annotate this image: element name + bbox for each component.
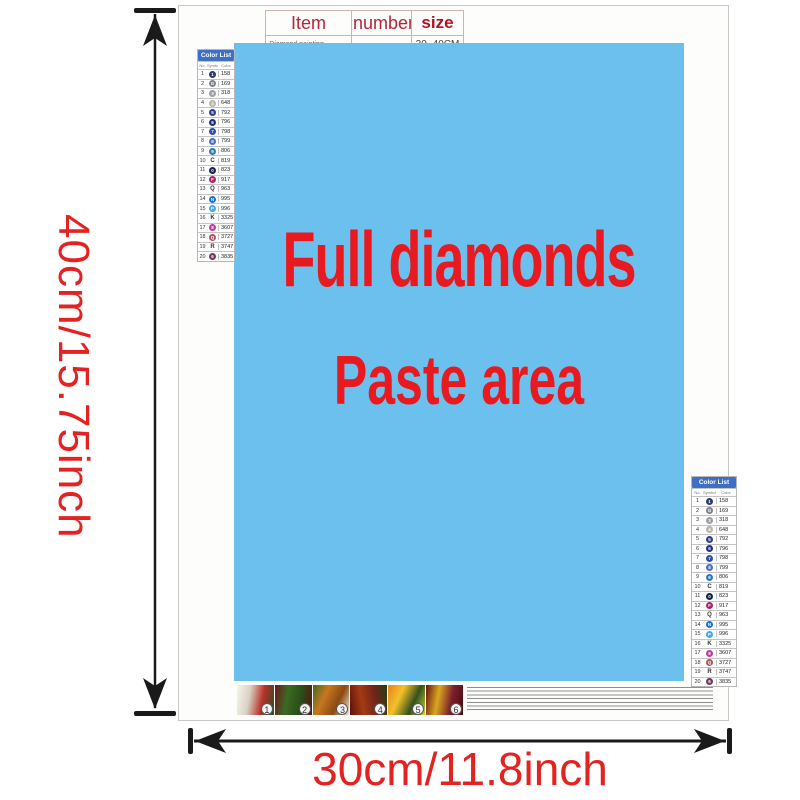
color-symbol-icon: N [703, 621, 716, 628]
dmc-color-code: 819 [716, 584, 736, 590]
color-dot-icon: 6 [706, 545, 713, 552]
step-thumbnail: 3 [313, 685, 350, 715]
dmc-color-code: 3835 [218, 254, 234, 260]
color-symbol-icon: 4 [703, 526, 716, 533]
color-list-row: 10C819 [692, 582, 736, 592]
color-row-number: 11 [692, 593, 703, 599]
color-row-number: 5 [692, 536, 703, 542]
step-thumbnail: 5 [388, 685, 425, 715]
color-dot-icon: P [706, 631, 713, 638]
color-row-number: 4 [692, 527, 703, 533]
color-dot-icon: 6 [209, 253, 216, 260]
color-dot-icon: 6 [706, 678, 713, 685]
color-row-number: 10 [198, 158, 207, 164]
dmc-color-code: 806 [716, 574, 736, 580]
height-dimension-arrow-icon [130, 6, 180, 720]
color-symbol-icon: Q [207, 234, 218, 241]
step-number-badge: 6 [450, 703, 462, 715]
dmc-color-code: 3325 [716, 641, 736, 647]
color-dot-icon: 8 [706, 564, 713, 571]
color-symbol-icon: R [207, 244, 218, 250]
color-dot-icon: 8 [209, 224, 216, 231]
color-list-row: 14N995 [198, 194, 234, 204]
color-symbol-icon: 5 [703, 536, 716, 543]
color-row-number: 3 [692, 517, 703, 523]
step-number-badge: 4 [374, 703, 386, 715]
color-list-column-header: Color [716, 490, 736, 495]
dmc-color-code: 819 [218, 158, 234, 164]
color-list-title: Color List [692, 477, 736, 488]
height-dimension-label: 40cm/15.75inch [48, 214, 98, 539]
color-list-row: 1783607 [692, 648, 736, 658]
dmc-color-code: 792 [716, 536, 736, 542]
color-symbol-icon: Q [703, 659, 716, 666]
color-dot-icon: Q [209, 234, 216, 241]
dmc-color-code: 806 [218, 148, 234, 154]
dmc-color-code: 799 [218, 138, 234, 144]
dmc-color-code: 3325 [218, 215, 234, 221]
color-row-number: 8 [692, 565, 703, 571]
color-symbol-icon: 7 [703, 555, 716, 562]
color-dot-icon: 0 [706, 593, 713, 600]
dmc-color-code: 3747 [716, 669, 736, 675]
color-symbol-icon: C [703, 584, 716, 590]
color-symbol-icon: 9 [703, 574, 716, 581]
step-thumbnail: 1 [237, 685, 274, 715]
dmc-color-code: 996 [716, 631, 736, 637]
color-dot-icon: F [209, 176, 216, 183]
color-dot-icon: 3 [706, 517, 713, 524]
color-symbol-icon: 9 [207, 148, 218, 155]
color-row-number: 14 [198, 196, 207, 202]
dmc-color-code: 3727 [218, 234, 234, 240]
dmc-color-code: 996 [218, 206, 234, 212]
color-dot-icon: N [706, 621, 713, 628]
color-row-number: 1 [198, 71, 207, 77]
color-dot-icon: 1 [706, 498, 713, 505]
color-list-row: 77798 [692, 553, 736, 563]
dmc-color-code: 823 [716, 593, 736, 599]
color-symbol-icon: R [703, 669, 716, 675]
color-list-row: 13Q963 [198, 184, 234, 194]
color-symbol-icon: 0 [703, 593, 716, 600]
dmc-color-code: 158 [716, 498, 736, 504]
color-letter-symbol: K [210, 215, 214, 221]
color-list-row: 99806 [692, 572, 736, 582]
color-list-row: 2063835 [198, 251, 234, 261]
step-thumbnail: 6 [426, 685, 463, 715]
color-dot-icon: 8 [706, 650, 713, 657]
step-number-badge: 2 [299, 703, 311, 715]
color-letter-symbol: K [707, 641, 711, 647]
color-symbol-icon: 0 [207, 167, 218, 174]
color-list-row: 16K3325 [692, 639, 736, 649]
color-symbol-icon: G [207, 80, 218, 87]
dmc-color-code: 796 [218, 119, 234, 125]
dmc-color-code: 995 [218, 196, 234, 202]
dmc-color-code: 169 [716, 508, 736, 514]
color-symbol-icon: 4 [207, 100, 218, 107]
dmc-color-code: 3835 [716, 679, 736, 685]
color-row-number: 6 [692, 546, 703, 552]
dmc-color-code: 917 [716, 603, 736, 609]
color-dot-icon: 7 [209, 128, 216, 135]
color-dot-icon: P [209, 205, 216, 212]
color-list-row: 66796 [198, 117, 234, 127]
color-list-row: 2063835 [692, 677, 736, 687]
color-list-row: 33318 [692, 515, 736, 525]
color-list-row: 12F917 [692, 601, 736, 611]
color-list-column-header: No. [692, 490, 703, 495]
color-letter-symbol: R [210, 244, 214, 250]
color-row-number: 2 [198, 81, 207, 87]
color-list-row: 13Q963 [692, 610, 736, 620]
dmc-color-code: 963 [716, 612, 736, 618]
color-row-number: 13 [692, 612, 703, 618]
color-symbol-icon: N [207, 196, 218, 203]
color-list-row: 2G169 [198, 79, 234, 89]
number-header-cell: number [352, 11, 412, 36]
color-row-number: 1 [692, 498, 703, 504]
color-row-number: 18 [692, 660, 703, 666]
dmc-color-code: 3607 [218, 225, 234, 231]
color-list-column-headers: No.SymbolColor [692, 488, 736, 496]
color-list-row: 18Q3727 [198, 232, 234, 242]
step-number-badge: 3 [336, 703, 348, 715]
dmc-color-code: 3727 [716, 660, 736, 666]
color-row-number: 10 [692, 584, 703, 590]
step-number-badge: 1 [261, 703, 273, 715]
color-symbol-icon: P [207, 205, 218, 212]
color-list-row: 11158 [692, 496, 736, 506]
color-symbol-icon: 6 [207, 119, 218, 126]
color-list-column-header: Color [218, 63, 234, 68]
dmc-color-code: 648 [716, 527, 736, 533]
color-row-number: 18 [198, 234, 207, 240]
color-dot-icon: 6 [209, 119, 216, 126]
color-list-row: 15P996 [198, 203, 234, 213]
color-row-number: 19 [198, 244, 207, 250]
color-list-row: 110823 [198, 165, 234, 175]
color-symbol-icon: F [703, 602, 716, 609]
color-symbol-icon: 3 [207, 90, 218, 97]
dmc-color-code: 798 [218, 129, 234, 135]
color-row-number: 12 [198, 177, 207, 183]
color-dot-icon: 5 [209, 109, 216, 116]
color-list-row: 15P996 [692, 629, 736, 639]
color-list-column-header: No. [198, 63, 207, 68]
color-symbol-icon: 8 [207, 138, 218, 145]
color-symbol-icon: G [703, 507, 716, 514]
color-row-number: 4 [198, 100, 207, 106]
color-dot-icon: 4 [706, 526, 713, 533]
dmc-color-code: 796 [716, 546, 736, 552]
color-list-row: 10C819 [198, 155, 234, 165]
color-list-row: 1783607 [198, 223, 234, 233]
color-row-number: 16 [198, 215, 207, 221]
color-list-title: Color List [198, 50, 234, 61]
step-thumbnails-strip: 123456 [237, 685, 463, 715]
color-letter-symbol: Q [707, 612, 712, 618]
dmc-color-code: 3607 [716, 650, 736, 656]
color-dot-icon: Q [706, 659, 713, 666]
color-list-row: 44648 [692, 525, 736, 535]
color-dot-icon: 5 [706, 536, 713, 543]
color-list-right: Color ListNo.SymbolColor111582G169333184… [691, 476, 737, 687]
dmc-color-code: 318 [716, 517, 736, 523]
color-row-number: 16 [692, 641, 703, 647]
color-symbol-icon: C [207, 158, 218, 164]
dmc-color-code: 917 [218, 177, 234, 183]
color-symbol-icon: 8 [703, 650, 716, 657]
color-list-row: 11158 [198, 69, 234, 79]
dmc-color-code: 318 [218, 90, 234, 96]
color-list-row: 14N995 [692, 620, 736, 630]
color-dot-icon: 8 [209, 138, 216, 145]
color-row-number: 17 [692, 650, 703, 656]
color-row-number: 7 [198, 129, 207, 135]
step-thumbnail: 4 [350, 685, 387, 715]
color-symbol-icon: 5 [207, 109, 218, 116]
color-row-number: 19 [692, 669, 703, 675]
size-header-cell: size [412, 11, 464, 36]
dmc-color-code: 792 [218, 110, 234, 116]
paste-area-title-line1: Full diamonds [234, 221, 684, 299]
color-letter-symbol: C [707, 584, 711, 590]
color-symbol-icon: 6 [207, 253, 218, 260]
color-row-number: 5 [198, 110, 207, 116]
color-symbol-icon: 8 [207, 224, 218, 231]
color-row-number: 8 [198, 138, 207, 144]
dmc-color-code: 798 [716, 555, 736, 561]
color-letter-symbol: C [210, 158, 214, 164]
color-symbol-icon: F [207, 176, 218, 183]
color-list-column-header: Symbol [703, 490, 716, 495]
color-list-row: 16K3325 [198, 213, 234, 223]
step-thumbnail: 2 [275, 685, 312, 715]
color-list-row: 77798 [198, 127, 234, 137]
color-list-row: 2G169 [692, 506, 736, 516]
paste-area: Full diamonds Paste area [234, 43, 684, 681]
color-symbol-icon: K [703, 641, 716, 647]
diamond-painting-size-chart: 40cm/15.75inch Item number size Diamond … [0, 0, 800, 800]
color-list-row: 88799 [198, 136, 234, 146]
color-list-row: 55792 [198, 107, 234, 117]
dmc-color-code: 823 [218, 167, 234, 173]
color-row-number: 20 [198, 254, 207, 260]
color-symbol-icon: 1 [207, 71, 218, 78]
color-dot-icon: 9 [706, 574, 713, 581]
color-letter-symbol: R [707, 669, 711, 675]
color-symbol-icon: K [207, 215, 218, 221]
color-symbol-icon: 7 [207, 128, 218, 135]
dmc-color-code: 799 [716, 565, 736, 571]
color-list-row: 19R3747 [198, 242, 234, 252]
color-list-row: 12F917 [198, 175, 234, 185]
color-row-number: 15 [198, 206, 207, 212]
color-dot-icon: 4 [209, 100, 216, 107]
color-list-row: 88799 [692, 563, 736, 573]
color-dot-icon: F [706, 602, 713, 609]
color-symbol-icon: Q [207, 186, 218, 192]
color-dot-icon: N [209, 196, 216, 203]
color-row-number: 9 [692, 574, 703, 580]
color-list-column-headers: No.SymbolColor [198, 61, 234, 69]
color-symbol-icon: Q [703, 612, 716, 618]
dmc-color-code: 158 [218, 71, 234, 77]
color-list-row: 19R3747 [692, 667, 736, 677]
step-number-badge: 5 [412, 703, 424, 715]
color-dot-icon: 9 [209, 148, 216, 155]
canvas-paper: Item number size Diamond painting 30~40C… [178, 5, 729, 721]
color-list-row: 66796 [692, 544, 736, 554]
color-symbol-icon: 1 [703, 498, 716, 505]
color-dot-icon: 3 [209, 90, 216, 97]
color-list-left: Color ListNo.SymbolColor111582G169333184… [197, 49, 235, 262]
color-symbol-icon: 6 [703, 678, 716, 685]
instructions-fine-print [467, 687, 713, 713]
color-list-column-header: Symbol [207, 63, 218, 68]
width-dimension-label: 30cm/11.8inch [186, 742, 734, 796]
color-symbol-icon: 6 [703, 545, 716, 552]
color-list-row: 55792 [692, 534, 736, 544]
color-row-number: 6 [198, 119, 207, 125]
dmc-color-code: 648 [218, 100, 234, 106]
color-dot-icon: 7 [706, 555, 713, 562]
color-dot-icon: 0 [209, 167, 216, 174]
color-row-number: 7 [692, 555, 703, 561]
color-row-number: 20 [692, 679, 703, 685]
color-symbol-icon: 8 [703, 564, 716, 571]
color-row-number: 2 [692, 508, 703, 514]
paste-area-title-line2: Paste area [234, 345, 684, 415]
color-dot-icon: G [209, 80, 216, 87]
color-symbol-icon: P [703, 631, 716, 638]
color-row-number: 13 [198, 186, 207, 192]
color-list-row: 33318 [198, 88, 234, 98]
color-row-number: 9 [198, 148, 207, 154]
color-row-number: 14 [692, 622, 703, 628]
color-dot-icon: 1 [209, 71, 216, 78]
color-list-row: 99806 [198, 146, 234, 156]
dmc-color-code: 169 [218, 81, 234, 87]
color-list-row: 44648 [198, 98, 234, 108]
color-row-number: 12 [692, 603, 703, 609]
color-row-number: 15 [692, 631, 703, 637]
color-row-number: 3 [198, 90, 207, 96]
dmc-color-code: 995 [716, 622, 736, 628]
color-list-row: 110823 [692, 591, 736, 601]
dmc-color-code: 3747 [218, 244, 234, 250]
color-symbol-icon: 3 [703, 517, 716, 524]
color-letter-symbol: Q [210, 186, 215, 192]
color-row-number: 17 [198, 225, 207, 231]
item-header-cell: Item [266, 11, 352, 36]
color-list-row: 18Q3727 [692, 658, 736, 668]
color-dot-icon: G [706, 507, 713, 514]
color-row-number: 11 [198, 167, 207, 173]
dmc-color-code: 963 [218, 186, 234, 192]
